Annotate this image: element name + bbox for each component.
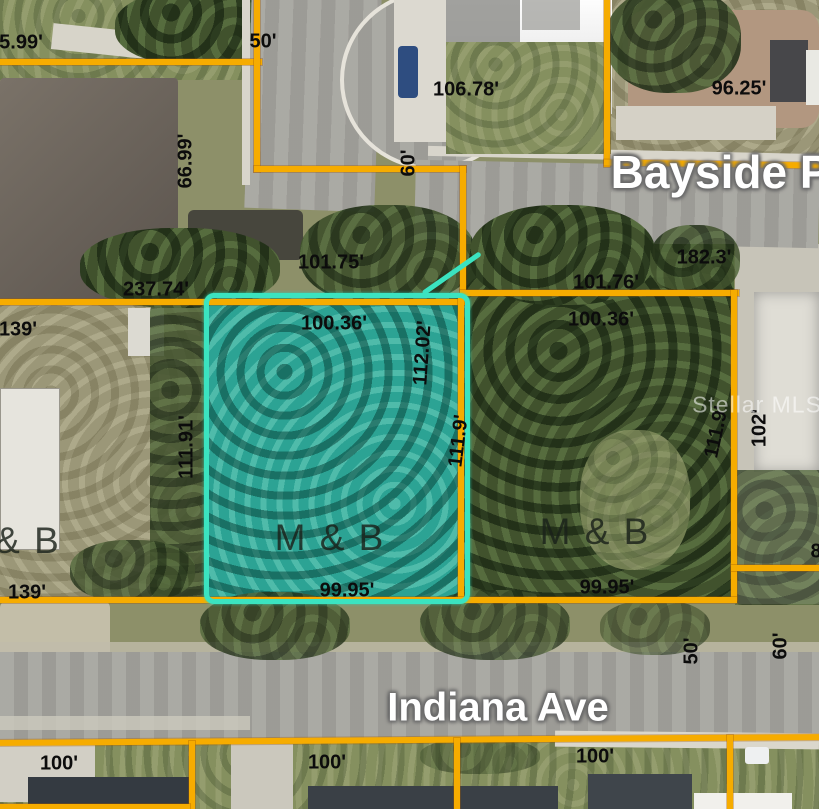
dim-75-99: 5.99' [0,32,43,55]
dim-237-74: 237.74' [123,279,189,302]
dim-99-95-a: 99.95' [320,580,375,603]
street-indiana: Indiana Ave [387,686,609,731]
dim-8-partial: 8 [810,541,819,564]
label-mb-b: M & B [540,511,651,553]
dim-100-36-b: 100.36' [568,309,634,332]
dim-100-a: 100' [40,753,78,776]
watermark: Stellar MLS [692,392,819,419]
dim-60-bottom: 60' [770,632,793,659]
dim-100-c: 100' [576,746,614,769]
dim-100-b: 100' [308,752,346,775]
street-bayside: Bayside Pl [611,145,819,199]
dim-50-top: 50' [249,31,276,54]
dim-101-76: 101.76' [573,272,639,295]
dim-112-02: 112.02' [409,320,436,386]
dim-100-36-a: 100.36' [301,313,367,336]
dim-139-top: 139' [0,319,37,342]
dim-182-3: 182.3' [677,247,732,270]
dim-66-99: 66.99' [175,134,198,189]
dim-106-78: 106.78' [433,79,499,102]
dim-101-75: 101.75' [298,252,364,275]
dim-99-95-b: 99.95' [580,577,635,600]
aerial-parcel-map: 5.99'50'106.78'96.25'66.99'60'Bayside Pl… [0,0,819,809]
dim-139-bottom: 139' [8,582,46,605]
label-mb-a: M & B [275,517,386,559]
dim-60-street: 60' [398,149,421,176]
dim-111-9-a: 111.9' [444,413,473,468]
dim-111-91: 111.91' [176,415,199,479]
label-mb-left: & B [0,520,61,562]
dim-96-25: 96.25' [712,78,767,101]
dim-50-bottom: 50' [681,637,704,664]
label-layer: 5.99'50'106.78'96.25'66.99'60'Bayside Pl… [0,0,819,809]
